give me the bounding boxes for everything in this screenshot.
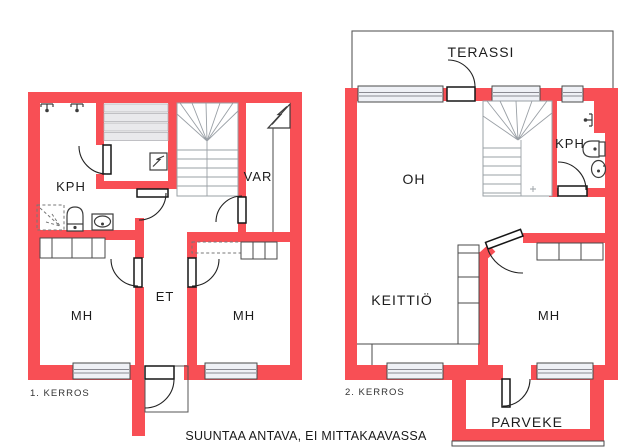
floor-plan-image: KPH VAR ET MH MH 1. KERROS TERASSI OH KP… — [0, 0, 640, 448]
wall — [135, 218, 144, 258]
toilet-icon — [583, 141, 605, 157]
mh-right-door — [187, 258, 219, 287]
wardrobe-mh2 — [537, 243, 603, 260]
kph-door — [135, 189, 168, 220]
sink-icon — [592, 161, 606, 178]
window — [562, 86, 583, 102]
balcony-door — [502, 365, 531, 407]
room-label-mh2: MH — [538, 308, 560, 323]
floor-plan-page: KPH VAR ET MH MH 1. KERROS TERASSI OH KP… — [0, 0, 640, 448]
room-label-oh: OH — [403, 171, 426, 187]
floor1-plan — [28, 92, 302, 436]
room-label-var: VAR — [244, 169, 273, 184]
sink-icon — [92, 214, 113, 230]
stairs-floor1 — [177, 103, 238, 196]
toilet-icon — [67, 207, 83, 231]
shower-head-icon — [41, 104, 53, 112]
entry-wall-stub — [132, 380, 145, 436]
room-label-terassi: TERASSI — [448, 44, 515, 60]
sauna-benches — [104, 104, 168, 141]
wall — [135, 287, 144, 365]
var-door — [216, 196, 246, 223]
wall — [187, 287, 197, 365]
room-label-kph2: KPH — [555, 136, 585, 151]
room-label-et: ET — [156, 289, 175, 304]
floor2-caption: 2. KERROS — [345, 387, 405, 398]
room-label-parveke: PARVEKE — [491, 414, 563, 430]
electrical-panel-icon — [268, 104, 290, 128]
entrance-door — [144, 365, 188, 412]
wall — [168, 103, 177, 189]
wardrobe-right-mh — [192, 242, 277, 259]
stairs-floor2 — [483, 101, 552, 196]
window — [205, 363, 257, 379]
balcony-wall — [590, 379, 604, 441]
window — [387, 363, 443, 379]
wall — [96, 103, 104, 145]
balcony-wall — [452, 429, 604, 441]
window — [358, 86, 443, 102]
room-label-keittio: KEITTIÖ — [371, 291, 432, 308]
mh-left-door — [111, 258, 144, 287]
window — [537, 363, 593, 379]
shower-corner — [37, 205, 64, 230]
balcony-railing — [452, 441, 604, 446]
wall — [587, 188, 605, 197]
sauna-stove-icon — [150, 153, 167, 170]
shower-head-icon — [584, 114, 592, 126]
kph2-door — [558, 162, 587, 197]
wall — [187, 232, 302, 242]
wardrobe-left-mh — [40, 238, 105, 258]
wall — [96, 181, 177, 189]
wall — [594, 101, 618, 133]
floor1-walls — [28, 92, 302, 436]
floor1-caption: 1. KERROS — [30, 388, 90, 399]
window — [73, 363, 130, 379]
floor2-plan — [345, 31, 618, 446]
wall — [523, 233, 605, 243]
window — [492, 86, 540, 102]
wall — [345, 88, 357, 380]
room-label-mh-right: MH — [233, 308, 255, 323]
wall — [28, 92, 302, 103]
sauna-door — [79, 145, 111, 174]
wall-diagonal — [481, 248, 492, 258]
terassi-outline — [352, 31, 613, 89]
shower-head-icon — [71, 104, 83, 112]
footer-disclaimer: SUUNTAA ANTAVA, EI MITTAKAAVASSA — [185, 429, 427, 443]
room-label-kph1: KPH — [56, 179, 86, 194]
room-label-mh-left: MH — [71, 308, 93, 323]
